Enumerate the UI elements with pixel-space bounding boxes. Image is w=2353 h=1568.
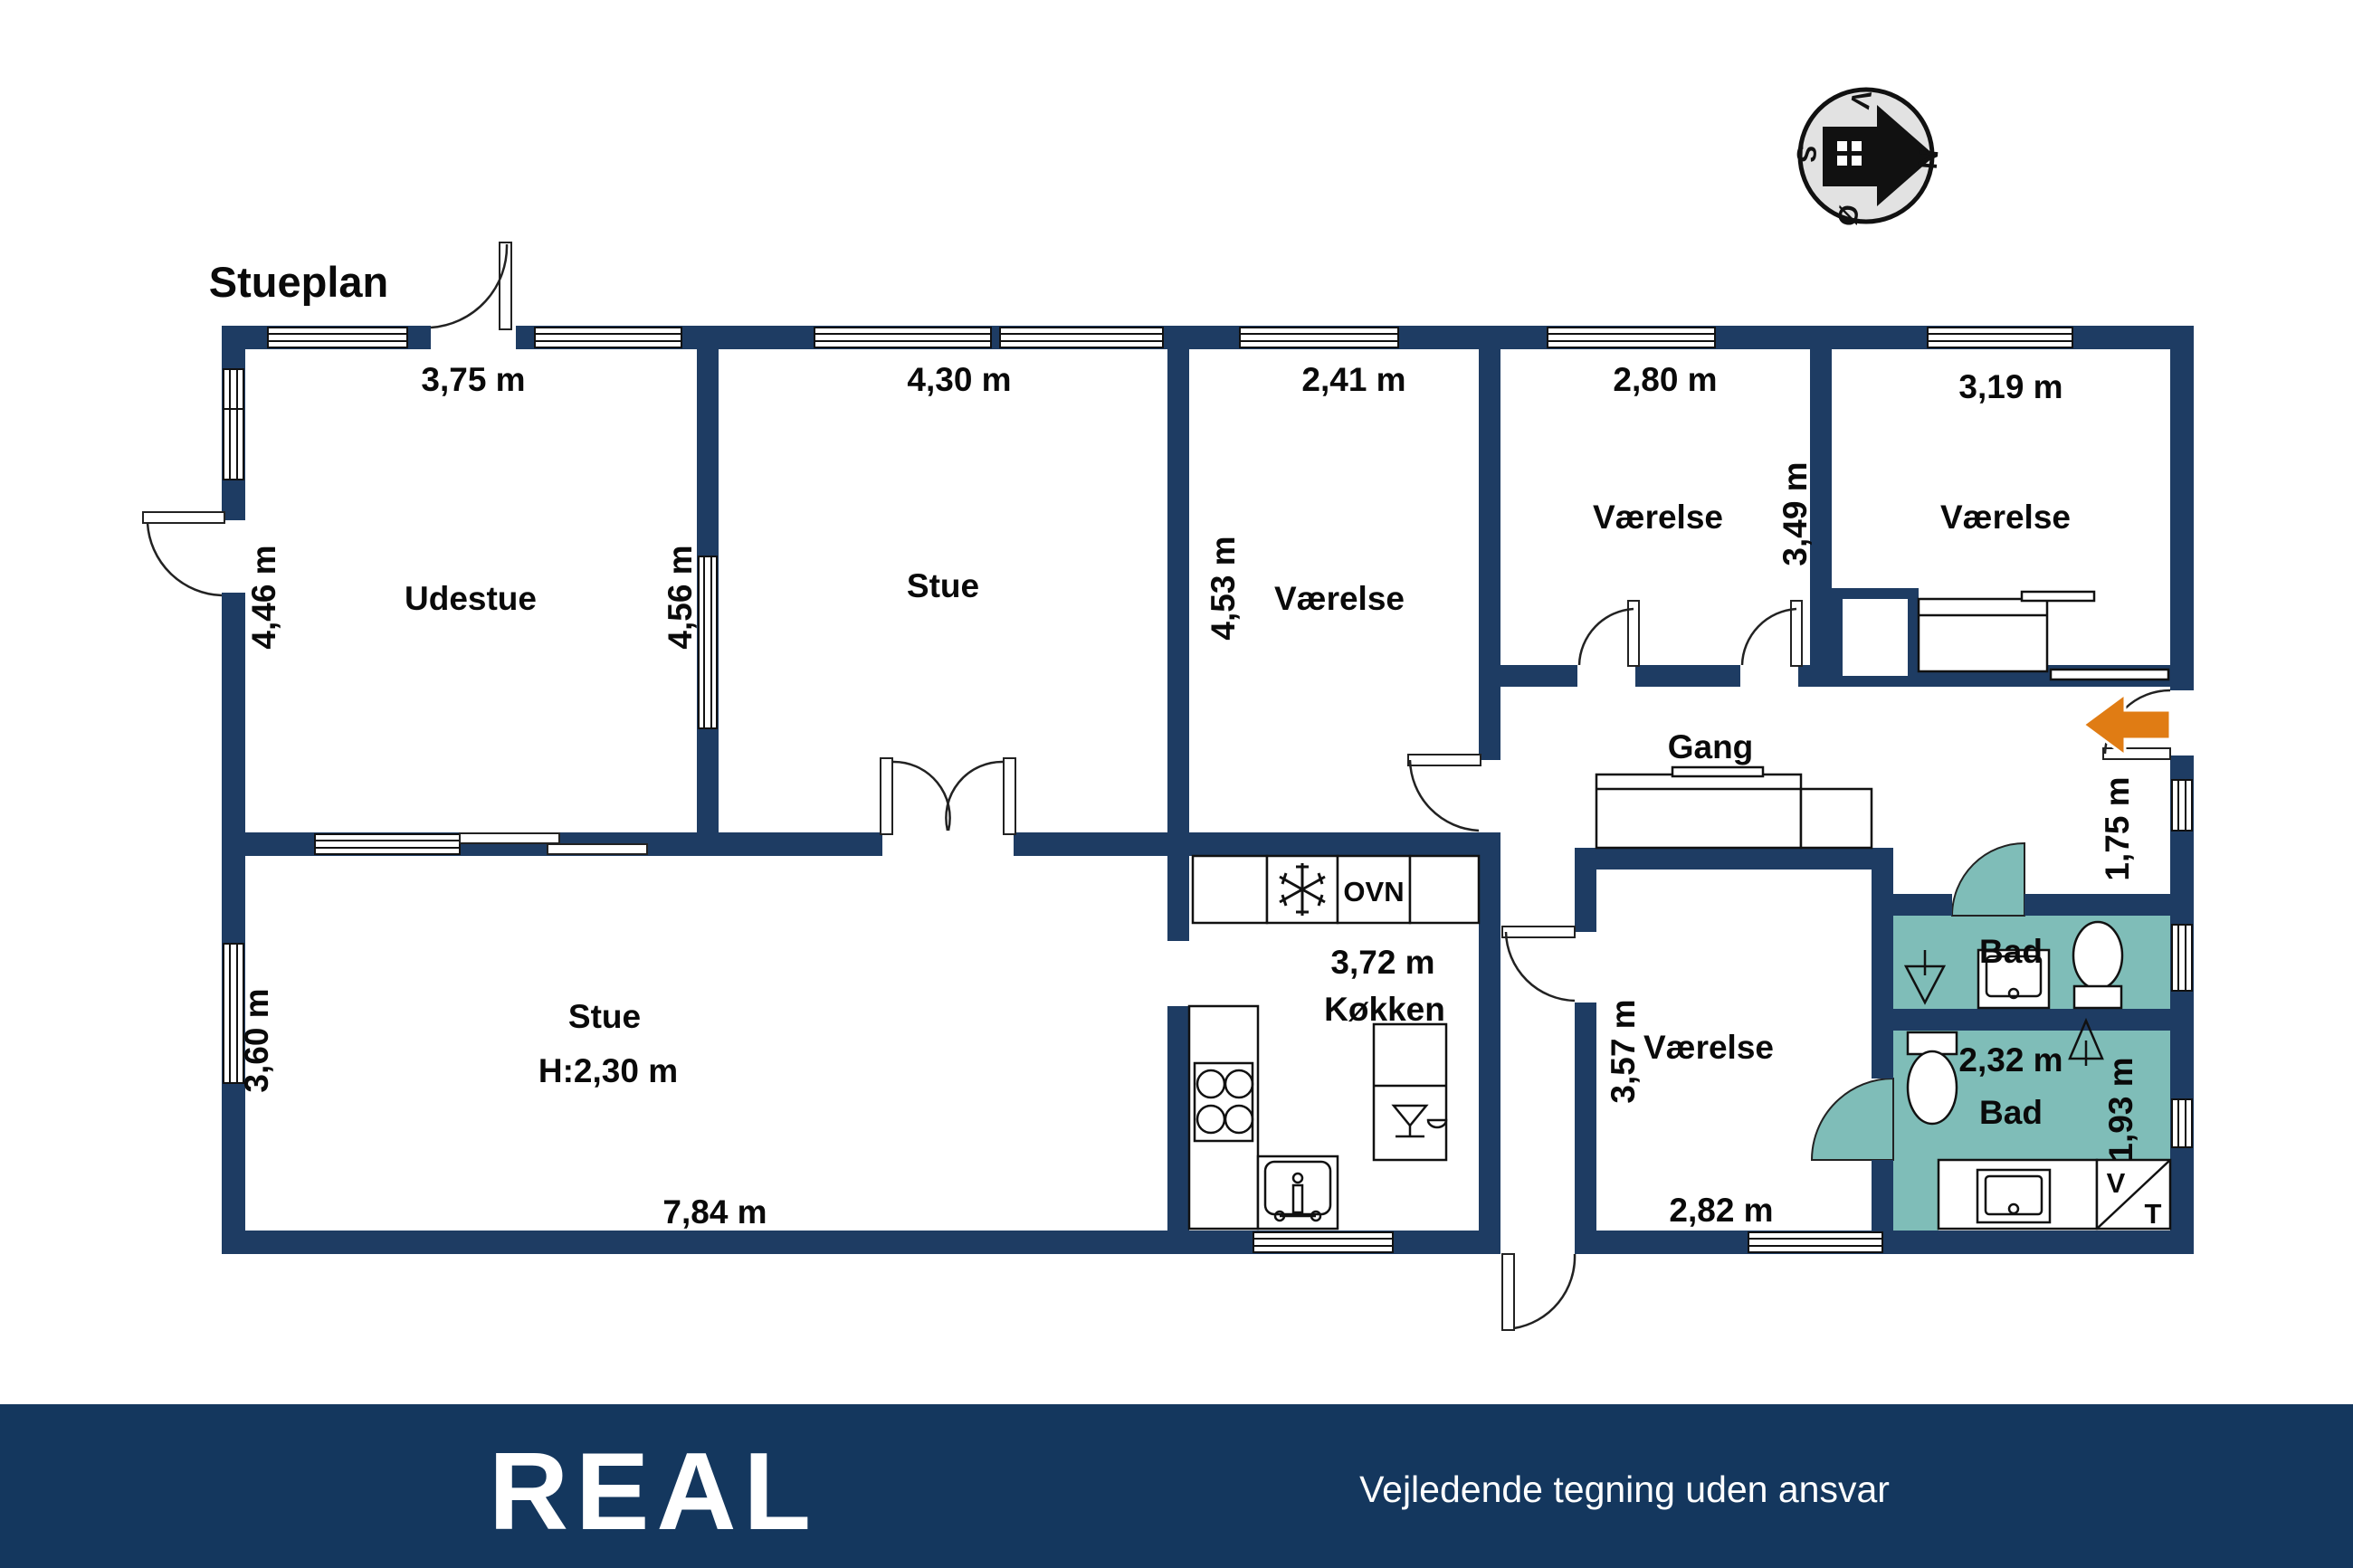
vaerelse2-width: 2,80 m xyxy=(1613,361,1717,398)
vaerelse3-width: 3,19 m xyxy=(1958,368,2062,405)
stue-lower-width: 7,84 m xyxy=(662,1193,767,1231)
gang-name: Gang xyxy=(1668,728,1754,765)
stue-lower-depth: 3,60 m xyxy=(238,988,275,1092)
toilet-icon xyxy=(1908,1032,1957,1124)
udestue-width: 3,75 m xyxy=(421,361,525,398)
window xyxy=(1000,328,1163,347)
window xyxy=(315,834,460,854)
toilet-icon xyxy=(2073,922,2122,1008)
window xyxy=(814,328,991,347)
washer-label: V xyxy=(2107,1167,2126,1199)
floorplan-page: Stueplan V N Ø S xyxy=(0,0,2353,1568)
window xyxy=(535,328,681,347)
footer-background xyxy=(0,1404,2353,1568)
hall-sill xyxy=(2051,670,2168,679)
window xyxy=(2172,780,2192,831)
wardrobe-icon xyxy=(1596,767,1801,848)
floorplan-canvas: Stueplan V N Ø S xyxy=(0,0,2353,1568)
vaerelse4-depth: 3,57 m xyxy=(1605,999,1642,1103)
window xyxy=(1240,328,1398,347)
stue-lower-name: Stue xyxy=(568,998,641,1035)
footer-tagline: Vejledende tegning uden ansvar xyxy=(1359,1468,1890,1510)
stove-icon xyxy=(1195,1063,1253,1141)
wardrobe-icon xyxy=(1801,789,1872,848)
vaerelse4-width: 2,82 m xyxy=(1669,1192,1773,1229)
vaerelse1-width: 2,41 m xyxy=(1301,361,1405,398)
compass-south-label: S xyxy=(1790,144,1822,165)
compass-north-label: N xyxy=(1911,148,1943,170)
stue-top-name: Stue xyxy=(907,567,979,604)
koekken-width: 3,72 m xyxy=(1330,944,1434,981)
bad-upper-name: Bad xyxy=(1979,933,2043,970)
plan-title: Stueplan xyxy=(209,258,388,306)
koekken-name: Køkken xyxy=(1324,991,1445,1028)
vaerelse1-name: Værelse xyxy=(1274,580,1405,617)
bad-lower-name: Bad xyxy=(1979,1094,2043,1131)
stue-top-width: 4,30 m xyxy=(907,361,1011,398)
udestue-depth: 4,46 m xyxy=(245,545,282,649)
window xyxy=(2172,1099,2192,1147)
bad-lower-width: 2,32 m xyxy=(1958,1041,2062,1079)
footer-logo: REAL xyxy=(489,1430,818,1553)
gang-entry-width: 1,75 m xyxy=(2099,776,2136,880)
stue-lower-ceiling: H:2,30 m xyxy=(538,1052,678,1089)
window xyxy=(1253,1232,1393,1252)
window xyxy=(699,556,717,728)
window xyxy=(1548,328,1715,347)
washbasin-icon xyxy=(1977,1170,2050,1222)
window xyxy=(1748,1232,1882,1252)
footer: REAL Vejledende tegning uden ansvar xyxy=(0,1404,2353,1568)
window xyxy=(224,369,243,480)
udestue-name: Udestue xyxy=(405,580,537,617)
window xyxy=(1928,328,2072,347)
oven-label: OVN xyxy=(1343,876,1404,908)
window xyxy=(268,328,407,347)
washer-dryer-unit: V T xyxy=(2097,1160,2170,1230)
stue-top-depth: 4,56 m xyxy=(662,545,699,649)
vaerelse2-name: Værelse xyxy=(1593,499,1723,536)
dryer-label: T xyxy=(2145,1198,2162,1230)
kitchen-sink-icon xyxy=(1265,1162,1330,1221)
vaerelse4-name: Værelse xyxy=(1643,1029,1774,1066)
vaerelse2-depth: 3,49 m xyxy=(1777,461,1814,565)
vaerelse3-name: Værelse xyxy=(1940,499,2071,536)
window xyxy=(2172,925,2192,991)
bad-lower-depth: 1,93 m xyxy=(2102,1057,2139,1161)
vaerelse1-depth: 4,53 m xyxy=(1205,536,1242,640)
